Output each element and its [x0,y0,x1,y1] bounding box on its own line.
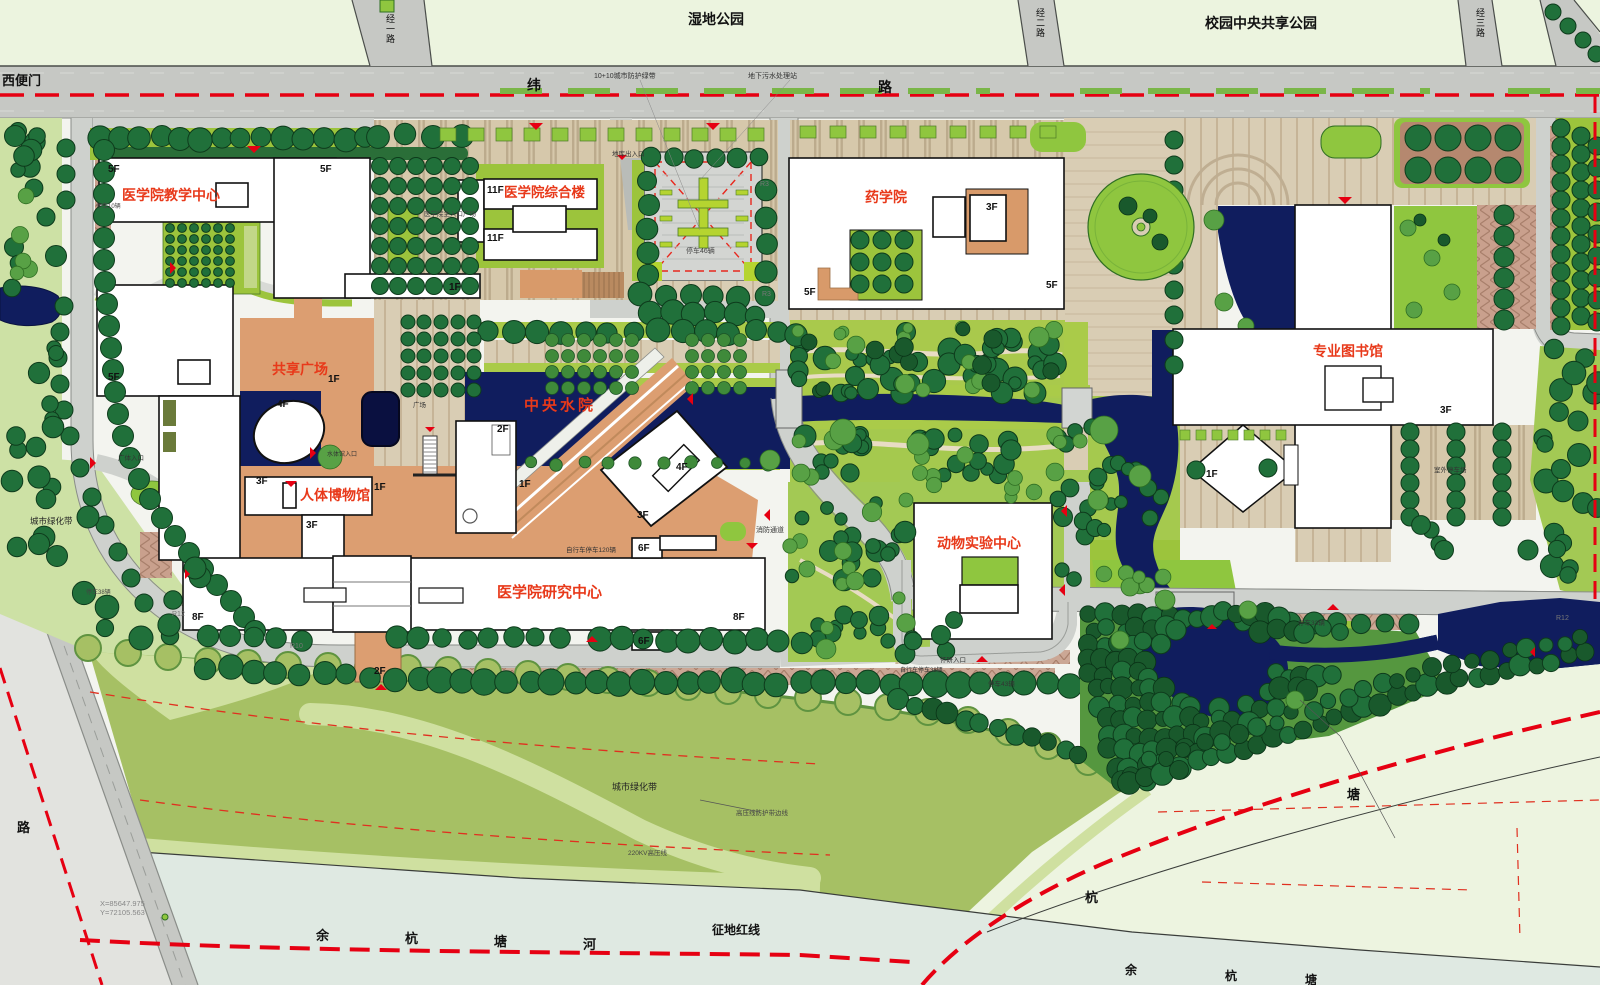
svg-text:R3: R3 [760,181,769,188]
svg-text:人体博物馆: 人体博物馆 [300,487,370,503]
svg-text:消防通道: 消防通道 [756,525,784,534]
svg-text:专业图书馆: 专业图书馆 [1313,343,1383,359]
svg-text:8F: 8F [192,612,204,623]
svg-text:药学院: 药学院 [865,189,907,205]
svg-text:4F: 4F [277,399,289,410]
svg-text:经二路: 经二路 [1035,7,1045,38]
svg-text:4F: 4F [676,462,688,473]
svg-text:校园中央共享公园: 校园中央共享公园 [1205,15,1317,31]
svg-text:广场: 广场 [413,400,427,409]
svg-text:自行车停车120辆: 自行车停车120辆 [566,545,616,554]
svg-text:高压线防护带边线: 高压线防护带边线 [736,808,789,817]
svg-text:1F: 1F [328,374,340,385]
svg-text:2F: 2F [497,424,509,435]
svg-text:R12: R12 [172,611,185,618]
svg-text:R10: R10 [290,643,303,650]
svg-text:X=85647.975: X=85647.975 [100,899,145,908]
svg-text:城市绿化带: 城市绿化带 [30,516,73,526]
svg-text:3F: 3F [637,510,649,521]
svg-text:塘: 塘 [1347,787,1360,802]
svg-text:停车43辆: 停车43辆 [988,679,1015,688]
svg-text:中央水院: 中央水院 [524,396,596,414]
svg-text:杭: 杭 [1085,890,1098,905]
svg-text:经三路: 经三路 [1475,7,1485,38]
svg-text:5F: 5F [320,164,332,175]
svg-text:纬: 纬 [527,77,541,93]
svg-text:自行车停车38辆: 自行车停车38辆 [900,666,943,674]
svg-text:2F: 2F [374,666,386,677]
svg-text:地库出入口: 地库出入口 [612,149,645,158]
svg-text:西便门: 西便门 [2,73,41,88]
svg-text:R12: R12 [1556,615,1569,622]
svg-text:5F: 5F [108,164,120,175]
svg-text:地下污水处理站: 地下污水处理站 [748,71,797,80]
svg-text:经一路: 经一路 [385,13,395,44]
svg-text:医学院教学中心: 医学院教学中心 [122,187,220,203]
svg-text:6F: 6F [638,636,650,647]
svg-text:3F: 3F [256,476,268,487]
svg-text:3F: 3F [1440,405,1452,416]
svg-text:塘: 塘 [1305,972,1317,985]
svg-text:城市绿化带: 城市绿化带 [612,781,657,792]
svg-text:怀研入口: 怀研入口 [940,655,966,664]
svg-text:5F: 5F [108,372,120,383]
svg-text:医学院研究中心: 医学院研究中心 [497,583,602,601]
svg-text:停车38辆: 停车38辆 [86,588,111,596]
svg-text:1F: 1F [374,482,386,493]
svg-text:湿地公园: 湿地公园 [688,11,744,27]
svg-text:3F: 3F [986,202,998,213]
svg-text:征地红线: 征地红线 [712,922,760,937]
svg-text:5F: 5F [1046,280,1058,291]
svg-text:8F: 8F [733,612,745,623]
svg-text:路: 路 [17,820,31,835]
svg-text:R3: R3 [762,291,771,298]
svg-text:停车10辆: 停车10辆 [96,202,121,210]
svg-text:路: 路 [878,79,893,95]
svg-text:220KV高压线: 220KV高压线 [628,848,668,857]
svg-text:1F: 1F [519,479,531,490]
svg-text:11F: 11F [487,233,504,244]
svg-text:医学院主入口广场: 医学院主入口广场 [424,209,477,218]
svg-text:余: 余 [1124,962,1138,977]
svg-text:共享广场: 共享广场 [272,361,328,377]
svg-text:杭: 杭 [405,931,418,946]
svg-text:1F: 1F [449,282,461,293]
svg-text:11F: 11F [487,185,504,196]
svg-text:河: 河 [583,937,596,952]
svg-text:停车46辆: 停车46辆 [686,246,715,255]
svg-text:3F: 3F [306,520,318,531]
svg-text:Y=72105.563: Y=72105.563 [100,908,145,917]
svg-text:水体馆入口: 水体馆入口 [327,450,357,458]
svg-text:余: 余 [315,928,330,943]
svg-text:广体入口: 广体入口 [118,453,144,462]
svg-text:1F: 1F [1206,469,1218,480]
svg-text:室外停车场: 室外停车场 [1434,465,1467,474]
svg-text:停车33辆: 停车33辆 [1298,618,1325,627]
svg-text:医学院综合楼: 医学院综合楼 [504,184,585,200]
svg-text:5F: 5F [804,287,816,298]
svg-text:10+10城市防护绿带: 10+10城市防护绿带 [594,71,656,80]
svg-text:动物实验中心: 动物实验中心 [937,535,1021,551]
svg-text:6F: 6F [638,543,650,554]
svg-text:塘: 塘 [494,934,507,949]
svg-text:杭: 杭 [1225,968,1237,983]
